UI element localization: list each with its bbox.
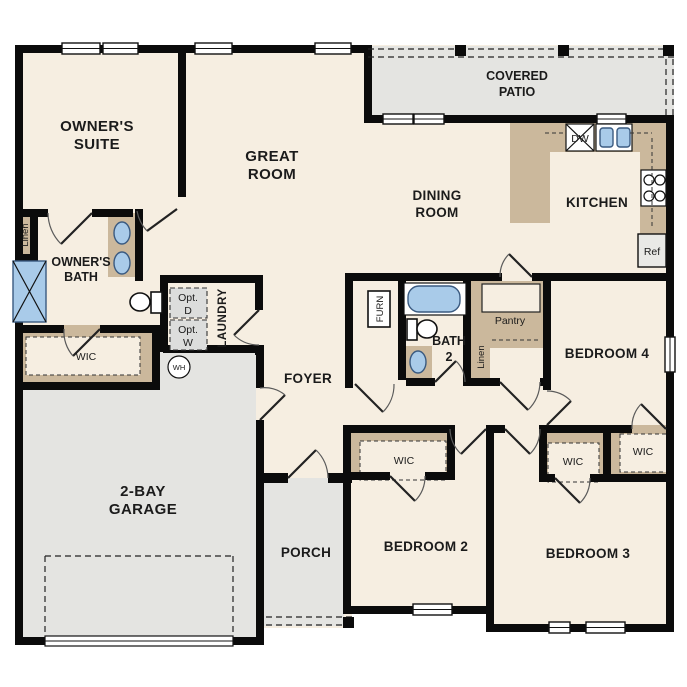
window [62, 43, 100, 54]
label-furnace: FURN [375, 296, 386, 323]
pantry-shelf [482, 284, 540, 312]
label-wic-owner: WIC [76, 351, 97, 363]
label-opt-washer: Opt. [178, 324, 198, 336]
label-water-heater: WH [173, 363, 186, 372]
label-great-room-2: ROOM [248, 166, 296, 183]
label-wic-bed3: WIC [563, 456, 584, 468]
label-garage-2: GARAGE [109, 501, 177, 518]
label-dishwasher: DW [571, 133, 589, 145]
label-bedroom4: BEDROOM 4 [565, 346, 650, 361]
label-linen-owner: Linen [20, 223, 31, 246]
floor-plan: OWNER'S SUITE GREAT ROOM COVERED PATIO D… [0, 0, 687, 687]
label-foyer: FOYER [284, 371, 332, 386]
label-opt-washer-2: W [183, 337, 193, 349]
window [597, 114, 626, 124]
label-owners-suite: OWNER'S [60, 118, 134, 135]
window [195, 43, 232, 54]
sink [114, 222, 130, 244]
label-laundry: LAUNDRY [217, 288, 229, 347]
label-owners-bath-2: BATH [64, 270, 98, 284]
label-dining-room-2: ROOM [415, 205, 458, 220]
window [103, 43, 138, 54]
label-pantry: Pantry [495, 315, 526, 327]
patio-post [663, 45, 674, 56]
label-bath2: BATH [432, 334, 466, 348]
floor-plan-drawing: OWNER'S SUITE GREAT ROOM COVERED PATIO D… [0, 0, 687, 687]
label-dining-room: DINING [412, 188, 461, 203]
label-porch: PORCH [281, 545, 331, 560]
patio-post [558, 45, 569, 56]
window [413, 604, 452, 615]
label-refrigerator: Ref [644, 246, 660, 258]
label-great-room: GREAT [245, 148, 298, 165]
label-bath2-2: 2 [446, 350, 453, 364]
kitchen-peninsula [510, 123, 550, 223]
window [383, 114, 413, 124]
window [315, 43, 351, 54]
range-stove [641, 170, 666, 206]
kitchen-sink [596, 124, 632, 151]
window [586, 622, 625, 633]
window [665, 337, 675, 372]
label-bedroom3: BEDROOM 3 [546, 546, 631, 561]
label-covered-patio-2: PATIO [499, 85, 536, 99]
label-opt-dryer-2: D [184, 305, 192, 317]
window [549, 622, 570, 633]
label-owners-bath: OWNER'S [51, 255, 110, 269]
garage-door [45, 636, 233, 646]
label-garage: 2-BAY [120, 483, 166, 500]
window [414, 114, 444, 124]
label-linen-hall: Linen [476, 345, 487, 368]
porch-post [343, 617, 354, 628]
label-owners-suite-2: SUITE [74, 136, 120, 153]
label-wic-bed2: WIC [394, 455, 415, 467]
sink [114, 252, 130, 274]
label-wic-bed4: WIC [633, 446, 654, 458]
shower [13, 261, 46, 322]
label-covered-patio: COVERED [486, 69, 548, 83]
patio-post [455, 45, 466, 56]
sink [410, 351, 426, 373]
label-opt-dryer: Opt. [178, 292, 198, 304]
label-bedroom2: BEDROOM 2 [384, 539, 468, 554]
bathtub [404, 283, 466, 315]
toilet [130, 292, 162, 313]
label-kitchen: KITCHEN [566, 195, 628, 210]
